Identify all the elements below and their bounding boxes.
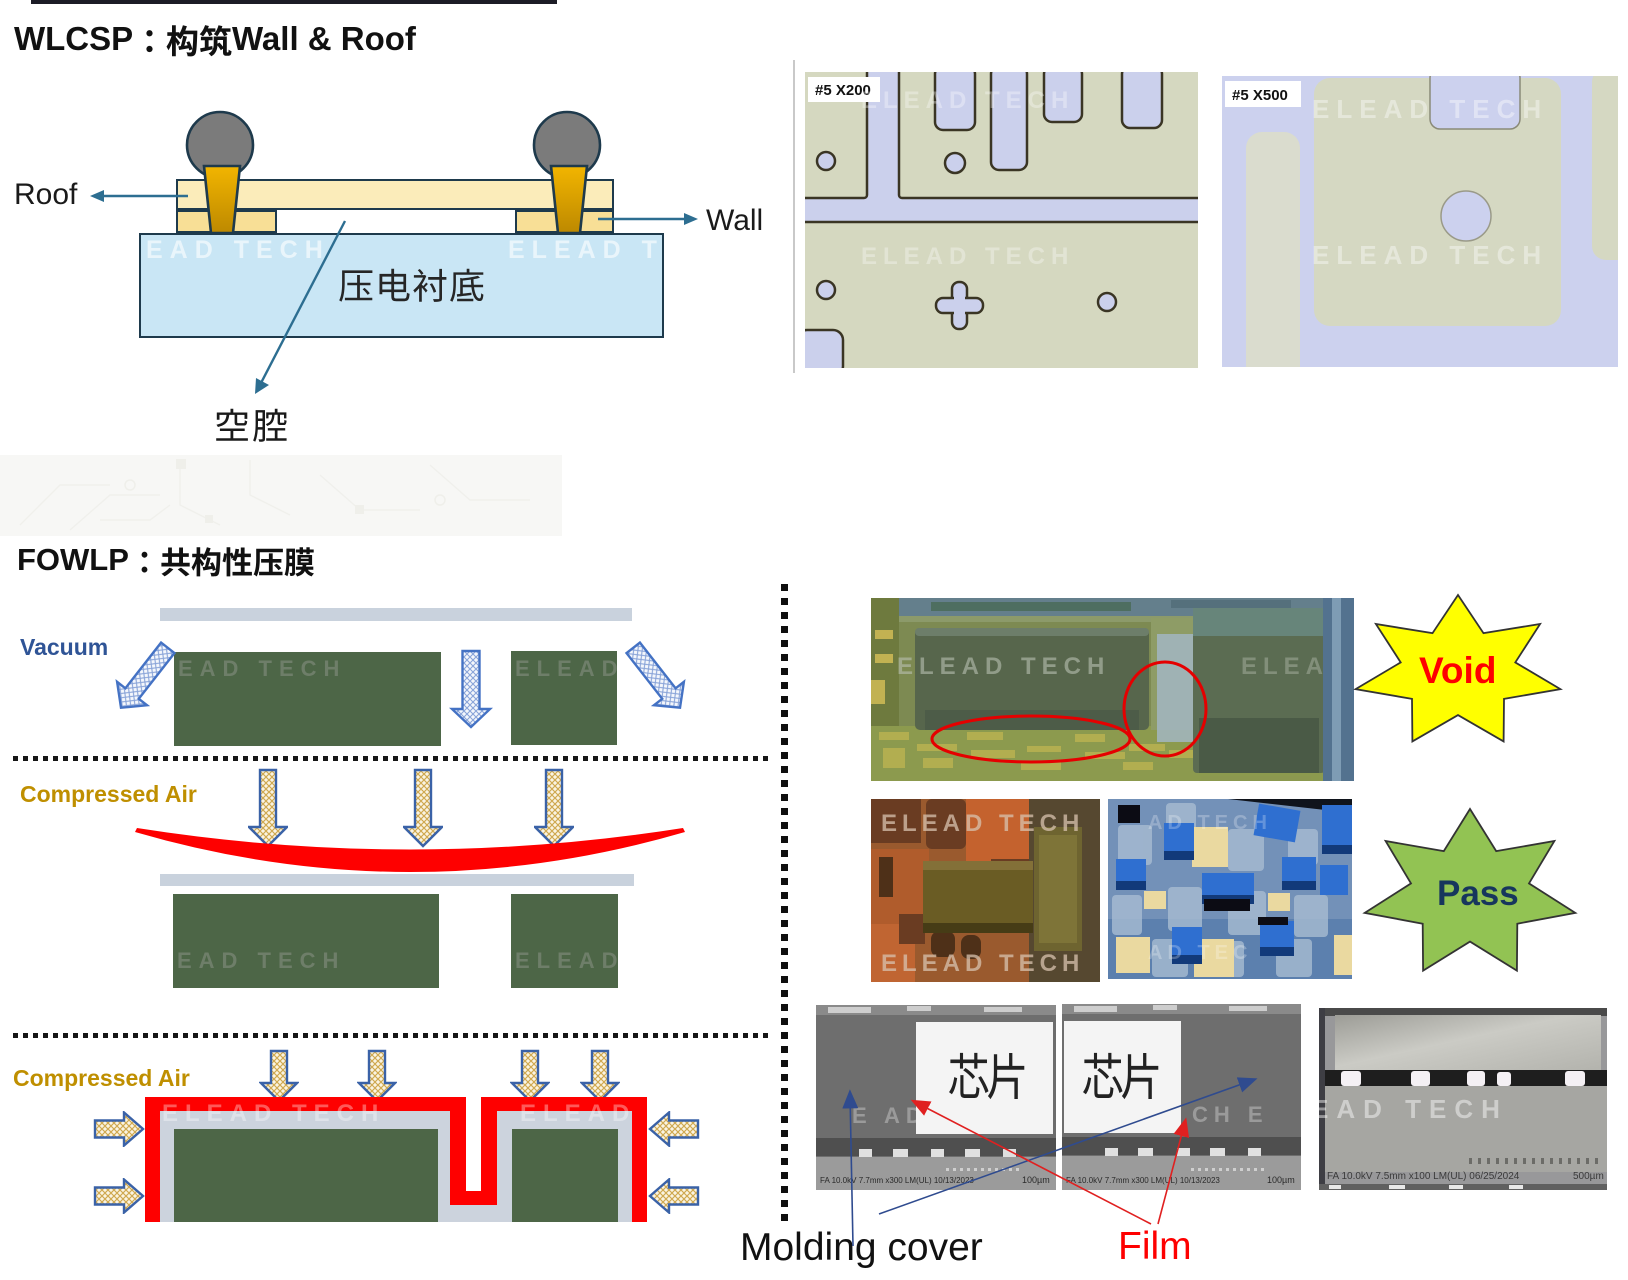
svg-text:#5 X500: #5 X500 [1232,87,1288,104]
svg-text:ELEAD TECH: ELEAD TECH [881,950,1084,977]
svg-text:ELEA: ELEA [1241,653,1329,680]
svg-text:ELEAD TECH: ELEAD TECH [861,243,1074,270]
svg-text:FA 10.0kV 7.5mm x100 LM(UL) 06: FA 10.0kV 7.5mm x100 LM(UL) 06/25/2024 [1327,1171,1520,1182]
svg-text:ELEAD TECH: ELEAD TECH [861,87,1074,114]
svg-text:AD TECH: AD TECH [1148,812,1272,834]
svg-text:Pass: Pass [1437,874,1519,913]
svg-text:500µm: 500µm [1573,1171,1604,1182]
svg-text:ELEAD TECH: ELEAD TECH [1312,240,1548,270]
svg-text:Void: Void [1419,650,1496,691]
svg-text:ELEAD TECH: ELEAD TECH [897,653,1110,680]
svg-text:AD TEC: AD TEC [1148,942,1252,964]
svg-text:ELEAD TECH: ELEAD TECH [881,810,1084,837]
svg-text:ELEAD TECH: ELEAD TECH [1312,94,1548,124]
svg-text:EAD TECH: EAD TECH [1319,1094,1508,1124]
